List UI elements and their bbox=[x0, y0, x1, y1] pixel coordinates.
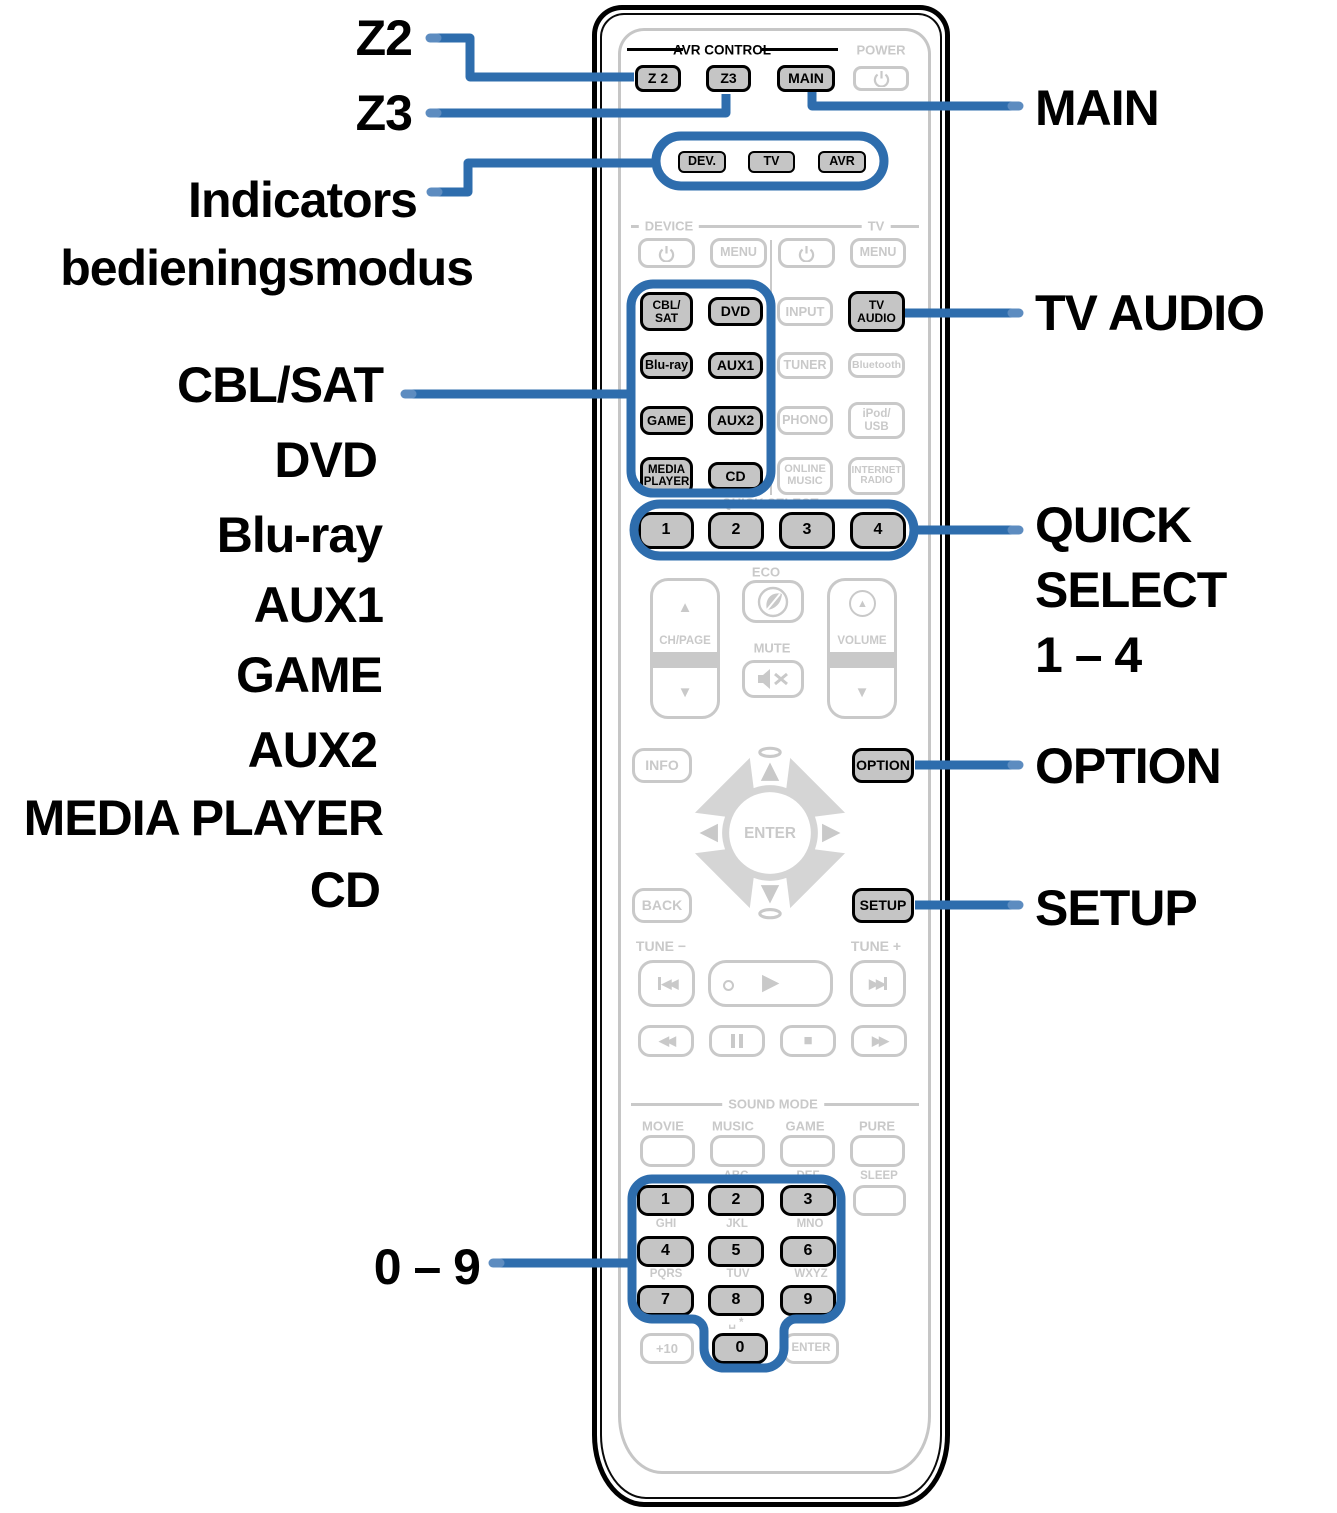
device-group-label: DEVICE bbox=[639, 219, 699, 234]
skip-back-icon: ◀◀ bbox=[658, 977, 676, 991]
callout-indicators-line1: Indicators bbox=[188, 175, 417, 225]
letters-def: DEF bbox=[797, 1170, 820, 1182]
skip-forward-icon: ▶▶ bbox=[869, 977, 887, 991]
pause-icon bbox=[731, 1034, 735, 1048]
mute-button[interactable] bbox=[742, 660, 804, 698]
digit-6-button[interactable]: 6 bbox=[780, 1236, 836, 1267]
input-media-player-button[interactable]: MEDIA PLAYER bbox=[640, 457, 693, 495]
power-icon bbox=[873, 70, 890, 87]
digit-7-button[interactable]: 7 bbox=[637, 1285, 694, 1316]
play-button[interactable]: ▶ bbox=[708, 960, 833, 1007]
digit-4-button[interactable]: 4 bbox=[637, 1236, 694, 1267]
input-dvd-button[interactable]: DVD bbox=[708, 297, 763, 326]
channel-down-icon[interactable]: ▼ bbox=[653, 684, 717, 701]
power-label: POWER bbox=[856, 43, 905, 58]
input-cbl-sat-button[interactable]: CBL/ SAT bbox=[640, 292, 693, 331]
skip-forward-button[interactable]: ▶▶ bbox=[850, 960, 906, 1007]
letters-mno: MNO bbox=[797, 1218, 824, 1230]
letters-wxyz: WXYZ bbox=[794, 1268, 827, 1280]
callout-z2: Z2 bbox=[356, 13, 412, 63]
indicator-tv: TV bbox=[748, 151, 795, 173]
input-tv-audio-button[interactable]: TV AUDIO bbox=[848, 291, 905, 332]
input-internet-radio-button[interactable]: INTERNET RADIO bbox=[848, 457, 905, 495]
sound-mode-movie-button[interactable] bbox=[640, 1135, 695, 1167]
rewind-button[interactable]: ◀◀ bbox=[638, 1025, 694, 1057]
main-zone-button[interactable]: MAIN bbox=[777, 65, 835, 92]
dpad-bottom-slot bbox=[760, 910, 780, 918]
volume-rocker[interactable]: ▲ VOLUME ▼ bbox=[827, 578, 897, 719]
callout-indicators-line2: bedieningsmodus bbox=[60, 243, 473, 293]
quick-select-2-button[interactable]: 2 bbox=[708, 512, 764, 549]
plus-10-button[interactable]: +10 bbox=[640, 1333, 694, 1364]
tune-plus-label: TUNE + bbox=[851, 938, 901, 954]
sound-mode-music-label: MUSIC bbox=[712, 1119, 754, 1134]
callout-blu-ray: Blu-ray bbox=[217, 510, 382, 560]
digit-0-button[interactable]: 0 bbox=[712, 1333, 768, 1364]
digit-3-button[interactable]: 3 bbox=[780, 1185, 836, 1216]
volume-label: VOLUME bbox=[830, 635, 894, 647]
callout-aux2: AUX2 bbox=[248, 725, 377, 775]
input-bluetooth-button[interactable]: Bluetooth bbox=[848, 353, 905, 378]
sound-mode-music-button[interactable] bbox=[710, 1135, 765, 1167]
callout-quick-line1: QUICK bbox=[1035, 500, 1191, 550]
stop-icon: ■ bbox=[803, 1033, 812, 1049]
input-cd-button[interactable]: CD bbox=[708, 462, 763, 490]
callout-digits-0-9: 0 – 9 bbox=[374, 1242, 480, 1292]
mute-icon bbox=[756, 668, 790, 690]
mute-label: MUTE bbox=[754, 641, 791, 656]
rocker-pivot bbox=[653, 652, 717, 668]
volume-up-icon[interactable]: ▲ bbox=[849, 590, 876, 617]
channel-up-icon[interactable]: ▲ bbox=[653, 599, 717, 616]
indicator-avr: AVR bbox=[818, 151, 866, 173]
power-icon bbox=[798, 245, 815, 262]
zone3-button[interactable]: Z3 bbox=[706, 65, 751, 92]
device-power-button[interactable] bbox=[638, 238, 695, 268]
pause-icon bbox=[739, 1034, 743, 1048]
callout-aux1: AUX1 bbox=[254, 580, 383, 630]
diagram-canvas: AVR CONTROL POWER DEVICE TV Z 2 Z3 MAIN … bbox=[0, 0, 1337, 1513]
input-tuner-button[interactable]: TUNER bbox=[777, 352, 833, 379]
fast-forward-button[interactable]: ▶▶ bbox=[851, 1025, 907, 1057]
input-phono-button[interactable]: PHONO bbox=[777, 406, 833, 435]
device-tv-divider bbox=[770, 240, 772, 495]
rocker-pivot bbox=[830, 652, 894, 668]
callout-dvd: DVD bbox=[274, 435, 377, 485]
callout-setup: SETUP bbox=[1035, 883, 1197, 933]
zone2-button[interactable]: Z 2 bbox=[635, 65, 681, 92]
callout-quick-line3: 1 – 4 bbox=[1035, 630, 1141, 680]
sound-mode-game-button[interactable] bbox=[780, 1135, 835, 1167]
avr-control-title: AVR CONTROL bbox=[673, 43, 771, 58]
letters-abc: ABC bbox=[724, 1170, 749, 1182]
callout-z3: Z3 bbox=[356, 88, 412, 138]
letters-pqrs: PQRS bbox=[650, 1268, 683, 1280]
dpad-top-slot bbox=[760, 748, 780, 756]
avr-control-line-right bbox=[762, 48, 838, 51]
stop-button[interactable]: ■ bbox=[780, 1025, 836, 1057]
callout-game: GAME bbox=[236, 650, 382, 700]
quick-select-label: QUICK SELECT bbox=[722, 496, 819, 511]
letters-ghi: GHI bbox=[656, 1218, 676, 1230]
power-button[interactable] bbox=[853, 66, 909, 91]
callout-cd: CD bbox=[310, 865, 380, 915]
digit-2-button[interactable]: 2 bbox=[708, 1185, 764, 1216]
digit-5-button[interactable]: 5 bbox=[708, 1236, 764, 1267]
digit-1-button[interactable]: 1 bbox=[637, 1185, 694, 1216]
indicator-dev: DEV. bbox=[678, 151, 726, 173]
record-ring-icon bbox=[723, 980, 734, 991]
pause-button[interactable] bbox=[709, 1025, 765, 1057]
play-icon: ▶ bbox=[762, 972, 778, 994]
quick-select-1-button[interactable]: 1 bbox=[638, 512, 694, 549]
numpad-enter-button[interactable]: ENTER bbox=[783, 1333, 839, 1364]
digit-9-button[interactable]: 9 bbox=[780, 1285, 836, 1316]
input-online-music-button[interactable]: ONLINE MUSIC bbox=[777, 457, 833, 495]
callout-cbl-sat: CBL/SAT bbox=[177, 360, 383, 410]
power-icon bbox=[658, 245, 675, 262]
sleep-label: SLEEP bbox=[860, 1170, 898, 1182]
volume-down-icon[interactable]: ▼ bbox=[830, 684, 894, 701]
input-input-button[interactable]: INPUT bbox=[777, 297, 833, 326]
sound-mode-game-label: GAME bbox=[786, 1119, 825, 1134]
letters-tuv: TUV bbox=[727, 1268, 750, 1280]
callout-main: MAIN bbox=[1035, 83, 1159, 133]
sound-mode-title: SOUND MODE bbox=[722, 1097, 824, 1112]
eco-button[interactable] bbox=[742, 580, 804, 623]
letters-jkl: JKL bbox=[726, 1218, 748, 1230]
sound-mode-pure-label: PURE bbox=[859, 1119, 895, 1134]
rewind-icon: ◀◀ bbox=[659, 1034, 673, 1048]
input-ipod-usb-button[interactable]: iPod/ USB bbox=[848, 402, 905, 439]
callout-tv-audio: TV AUDIO bbox=[1035, 288, 1264, 338]
quick-select-4-button[interactable]: 4 bbox=[850, 512, 906, 549]
input-blu-ray-button[interactable]: Blu-ray bbox=[640, 352, 693, 379]
input-aux1-button[interactable]: AUX1 bbox=[708, 352, 763, 379]
skip-back-button[interactable]: ◀◀ bbox=[638, 960, 695, 1007]
letters-space-star: ␣ * bbox=[729, 1315, 744, 1329]
ch-page-label: CH/PAGE bbox=[653, 635, 717, 647]
callout-option: OPTION bbox=[1035, 741, 1221, 791]
fast-forward-icon: ▶▶ bbox=[872, 1034, 886, 1048]
eco-leaf-icon bbox=[755, 584, 791, 620]
sound-mode-pure-button[interactable] bbox=[850, 1135, 905, 1167]
quick-select-3-button[interactable]: 3 bbox=[779, 512, 835, 549]
channel-page-rocker[interactable]: ▲ CH/PAGE ▼ bbox=[650, 578, 720, 719]
tune-minus-label: TUNE − bbox=[636, 938, 686, 954]
tv-power-button[interactable] bbox=[778, 238, 835, 268]
sleep-button[interactable] bbox=[853, 1185, 906, 1216]
callout-quick-line2: SELECT bbox=[1035, 565, 1226, 615]
input-game-button[interactable]: GAME bbox=[640, 406, 693, 435]
eco-label: ECO bbox=[752, 565, 780, 580]
input-aux2-button[interactable]: AUX2 bbox=[708, 406, 763, 435]
tv-menu-button[interactable]: MENU bbox=[850, 238, 906, 268]
digit-8-button[interactable]: 8 bbox=[708, 1285, 764, 1316]
tv-group-label: TV bbox=[862, 219, 891, 234]
enter-button-label[interactable]: ENTER bbox=[744, 825, 796, 842]
callout-media-player: MEDIA PLAYER bbox=[24, 793, 383, 843]
device-menu-button[interactable]: MENU bbox=[710, 238, 767, 268]
direction-pad[interactable]: ENTER bbox=[673, 736, 867, 930]
sound-mode-movie-label: MOVIE bbox=[642, 1119, 684, 1134]
